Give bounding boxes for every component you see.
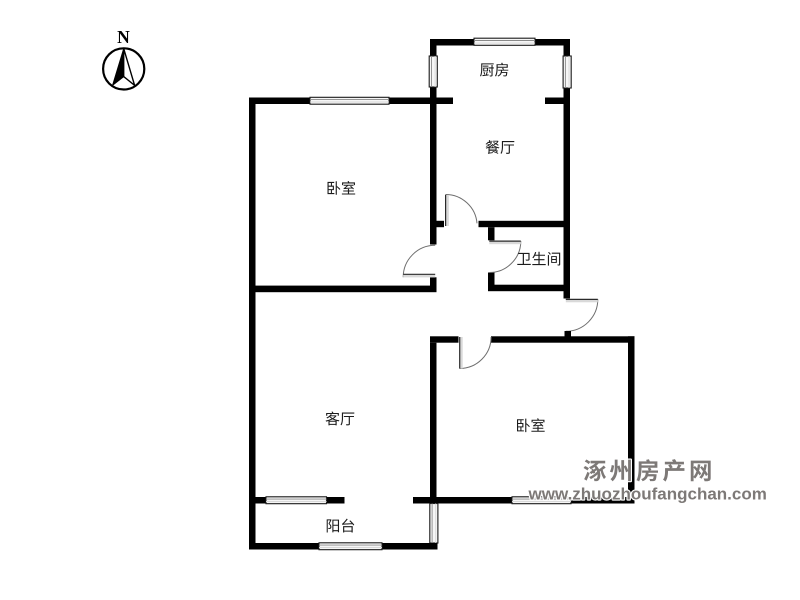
svg-text:www.zhuozhoufangchan.com: www.zhuozhoufangchan.com bbox=[528, 485, 767, 504]
svg-text:N: N bbox=[117, 27, 130, 47]
